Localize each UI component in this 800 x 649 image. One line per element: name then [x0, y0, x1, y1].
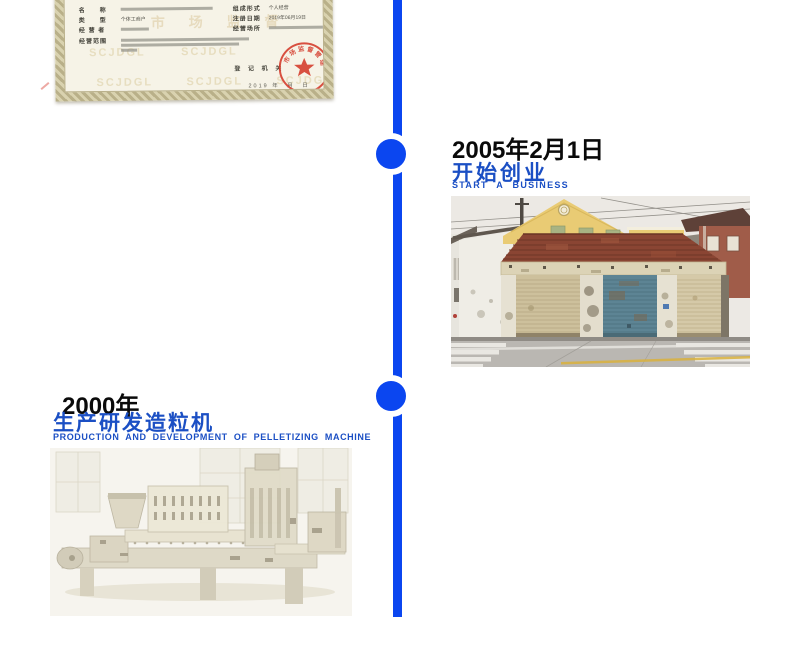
certificate-paper: 市 场 监 督 SCJDGL SCJDGL SCJDGL SCJDGL SCJD… [63, 0, 324, 92]
field-operator-value-illegible [121, 27, 149, 30]
field-type-value: 个体工商户 [121, 16, 146, 23]
machine-photo-2000 [50, 448, 352, 616]
field-form-value: 个人经营 [269, 4, 289, 11]
garage-fascia [501, 262, 726, 275]
field-scope-value-illegible [121, 49, 137, 52]
field-place-label: 经营场所 [233, 23, 261, 32]
field-type-label: 类 型 [79, 15, 107, 24]
field-regdate-value: 2019年06月19日 [269, 14, 306, 21]
company-history-timeline-page: 市 场 监 督 SCJDGL SCJDGL SCJDGL SCJDGL SCJD… [0, 0, 800, 649]
road [451, 337, 750, 367]
roller-door-right [677, 275, 721, 337]
certificate-watermark: SCJDGL [181, 46, 238, 59]
field-regdate-label: 注册日期 [233, 13, 261, 22]
certificate-watermark: SCJDGL [186, 75, 243, 88]
field-scope-value-illegible [121, 37, 249, 41]
certificate-watermark: SCJDGL [96, 76, 153, 89]
field-operator-label: 经 营 者 [79, 25, 105, 34]
timeline-node-2005 [370, 133, 412, 175]
milestone-2005-title-en: START A BUSINESS [452, 180, 569, 190]
stamp-star-icon [294, 58, 315, 77]
timeline-node-2000 [370, 375, 412, 417]
building-photo-2005 [451, 196, 750, 367]
business-license-certificate: 市 场 监 督 SCJDGL SCJDGL SCJDGL SCJDGL SCJD… [54, 0, 333, 101]
field-scope-label: 经营范围 [79, 36, 107, 45]
red-official-stamp: 市场监督管理局 [276, 40, 325, 93]
roller-door-middle [603, 275, 657, 337]
timeline-line [393, 0, 402, 617]
field-form-label: 组成形式 [233, 3, 261, 12]
scan-artifact-mark [41, 82, 50, 90]
roller-door-left [516, 275, 580, 337]
milestone-2000-title-en: PRODUCTION AND DEVELOPMENT OF PELLETIZIN… [53, 432, 371, 442]
field-name-label: 名 称 [79, 5, 107, 14]
field-place-value-illegible [269, 26, 325, 29]
certificate-watermark: SCJDGL [89, 47, 146, 60]
field-name-value-illegible [121, 7, 213, 11]
